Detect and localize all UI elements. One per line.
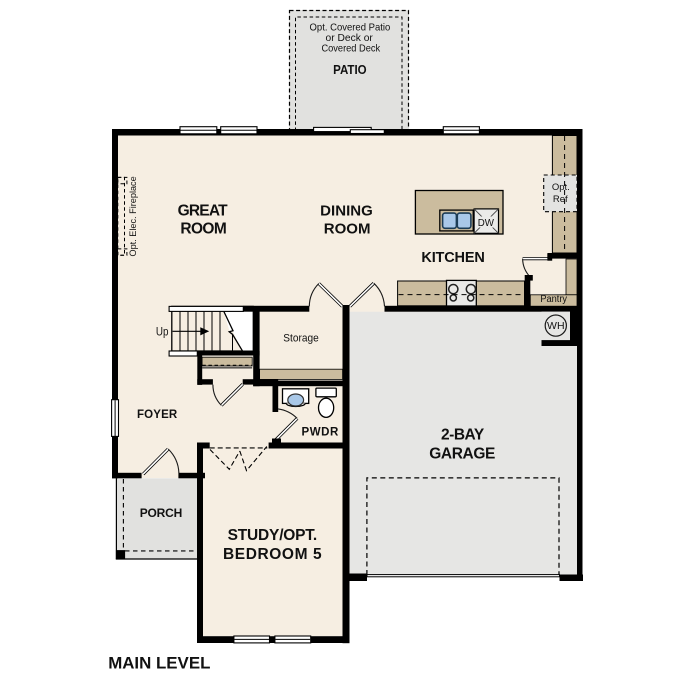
svg-text:WH: WH (547, 320, 565, 332)
svg-text:PATIO: PATIO (333, 62, 367, 77)
svg-text:STUDY/OPT.: STUDY/OPT. (228, 527, 318, 544)
svg-text:GREAT: GREAT (178, 203, 229, 220)
svg-text:Up: Up (156, 326, 169, 338)
svg-text:ROOM: ROOM (180, 220, 226, 237)
svg-text:DINING: DINING (320, 203, 373, 220)
svg-text:Ref: Ref (553, 194, 568, 205)
svg-text:KITCHEN: KITCHEN (421, 250, 484, 266)
svg-text:Covered Deck: Covered Deck (321, 42, 380, 54)
svg-text:PORCH: PORCH (140, 506, 183, 520)
svg-text:PWDR: PWDR (302, 427, 339, 439)
svg-text:Pantry: Pantry (540, 294, 567, 305)
svg-text:BEDROOM 5: BEDROOM 5 (223, 546, 322, 563)
svg-text:GARAGE: GARAGE (429, 445, 495, 462)
svg-text:FOYER: FOYER (137, 409, 178, 421)
svg-text:Opt.: Opt. (552, 182, 570, 193)
svg-text:DW: DW (478, 217, 494, 229)
svg-text:Opt. Elec. Fireplace: Opt. Elec. Fireplace (128, 176, 139, 256)
svg-text:ROOM: ROOM (324, 220, 371, 237)
svg-text:Storage: Storage (283, 333, 318, 345)
svg-text:2-BAY: 2-BAY (441, 426, 485, 443)
svg-text:MAIN LEVEL: MAIN LEVEL (108, 654, 210, 673)
